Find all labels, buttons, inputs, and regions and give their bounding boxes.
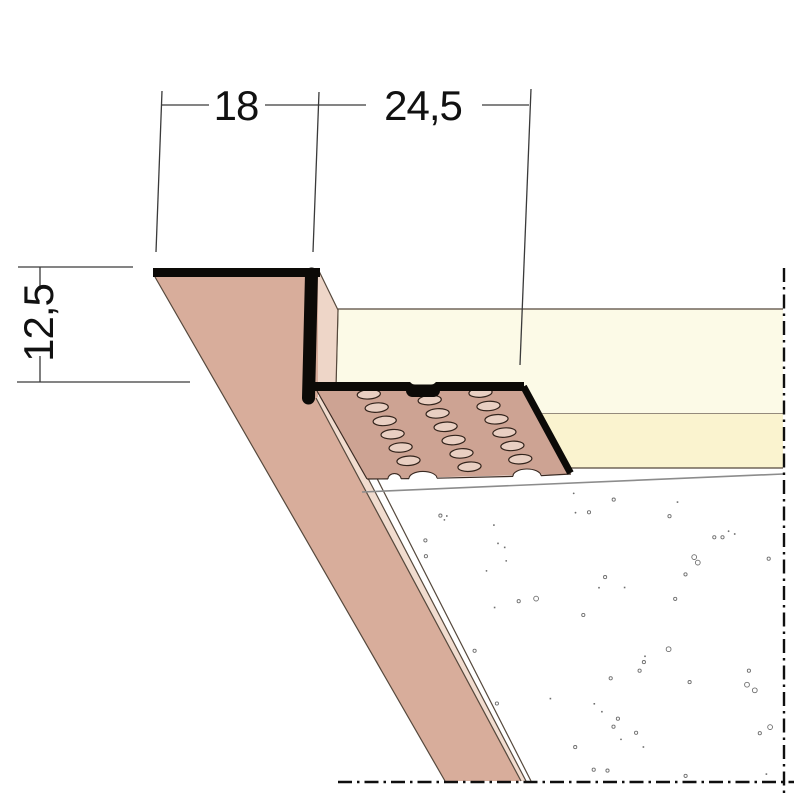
- stipple-ring: [684, 573, 687, 576]
- stipple-ring: [684, 774, 687, 777]
- stipple-dot: [505, 560, 507, 562]
- stipple-ring: [606, 769, 609, 772]
- stipple-speck: [644, 656, 646, 658]
- stipple-ring: [609, 677, 612, 680]
- stipple-speck: [601, 711, 603, 713]
- stipple-ring: [616, 717, 619, 720]
- stipple-speck: [643, 746, 645, 748]
- stipple-ring: [635, 731, 638, 734]
- stipple-ring: [439, 514, 442, 517]
- stipple-speck: [493, 524, 495, 526]
- stipple-ring: [721, 536, 724, 539]
- stipple-ring: [767, 557, 770, 560]
- stipple-ring: [692, 555, 697, 560]
- profile-section-diagram: 18 24,5 12,5: [0, 0, 800, 800]
- stipple-ring: [495, 702, 498, 705]
- stipple-speck: [598, 587, 600, 589]
- stipple-speck: [734, 533, 736, 535]
- stipple-ring: [587, 511, 590, 514]
- stipple-ring: [642, 661, 645, 664]
- stipple-ring: [688, 681, 691, 684]
- stipple-ring: [592, 768, 595, 771]
- ext-line-18-left: [156, 91, 162, 252]
- web-section-bar: [309, 274, 312, 398]
- stipple-ring: [574, 746, 577, 749]
- stipple-ring: [534, 596, 539, 601]
- stipple-ring: [473, 649, 476, 652]
- stipple-speck: [446, 515, 448, 517]
- stipple-dot: [486, 570, 488, 572]
- dim-label-24-5: 24,5: [384, 82, 462, 129]
- stipple-speck: [594, 703, 596, 705]
- stipple-dot: [728, 530, 730, 532]
- stipple-ring: [745, 682, 750, 687]
- stipple-ring: [424, 555, 427, 558]
- board-surface-band: [538, 414, 783, 468]
- stipple-ring: [612, 498, 615, 501]
- stipple-ring: [695, 560, 700, 565]
- section-bar-bulge: [406, 384, 440, 397]
- stipple-ring: [612, 725, 615, 728]
- stipple-dot: [444, 519, 446, 521]
- stipple-speck: [677, 501, 679, 503]
- stipple-speck: [504, 547, 506, 549]
- stipple-speck: [494, 607, 496, 609]
- stipple-ring: [604, 576, 607, 579]
- ext-line-18-245-shared: [313, 92, 319, 252]
- stipple-speck: [550, 698, 552, 700]
- dim-label-12-5: 12,5: [15, 284, 62, 362]
- stipple-ring: [517, 600, 520, 603]
- stipple-ring: [424, 539, 427, 542]
- stipple-ring: [638, 669, 641, 672]
- stipple-dot: [620, 739, 622, 741]
- dim-label-18: 18: [214, 82, 259, 129]
- stipple-ring: [713, 536, 716, 539]
- technical-drawing-page: 18 24,5 12,5: [0, 0, 800, 800]
- stipple-ring: [666, 647, 671, 652]
- stipple-ring: [668, 515, 671, 518]
- top-flange-section-bar: [153, 268, 320, 277]
- stipple-speck: [624, 587, 626, 589]
- stipple-ring: [752, 688, 757, 693]
- stipple-speck: [766, 773, 768, 775]
- section-bar-notch: [409, 373, 437, 385]
- stipple-ring: [582, 613, 585, 616]
- stipple-ring: [747, 669, 750, 672]
- stipple-dot: [573, 493, 575, 495]
- stipple-ring: [758, 732, 761, 735]
- stipple-speck: [497, 543, 499, 545]
- stipple-ring: [768, 725, 773, 730]
- stipple-ring: [674, 597, 677, 600]
- stipple-dot: [575, 512, 577, 514]
